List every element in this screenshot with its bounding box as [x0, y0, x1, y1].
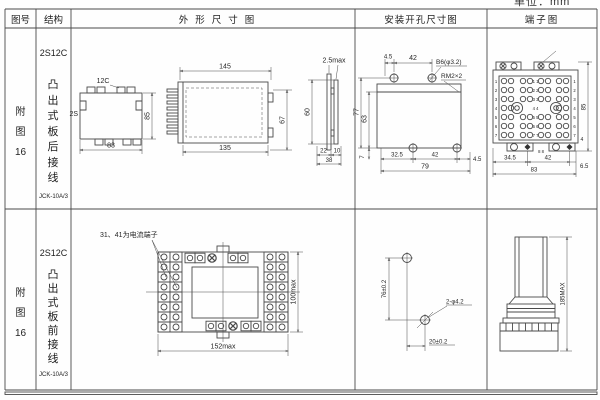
outline-panel-profile: 2.5max 60 22 10 38 [305, 58, 346, 167]
dim-mount-bottom-d1: 32.5 [391, 153, 403, 159]
dim-panel-b2: 10 [334, 149, 341, 155]
dim-mount-top-d1: 4.5 [384, 55, 393, 61]
dim-term-b2: 42 [545, 156, 552, 162]
term-row-num: 7 [495, 133, 498, 138]
dim-mount-top-d2: 42 [409, 55, 417, 62]
terminal-diagram: 1 2 3 4 5 6 7 1 2 3 4 5 6 7 1 1 2 2 3 3 … [493, 51, 592, 177]
term-row-num: 1 [573, 79, 576, 84]
term-bottom-pair: 8 8 [538, 149, 544, 154]
term-center-num: 3 3 [533, 97, 539, 102]
dim-side-top: 145 [219, 64, 231, 71]
catalog-page: 单位：mm 图号 结构 外形尺寸图 安装开孔尺寸图 端子图 附 图 16 2S1… [0, 0, 600, 400]
dim-term-total: 83 [531, 168, 538, 174]
side-profile-view: 185MAX [500, 237, 572, 351]
dim-front-width: 83 [107, 143, 115, 150]
term-row-num: 1 [495, 79, 498, 84]
term-center-num: 2 2 [533, 88, 539, 93]
dim-term-height: 85 [582, 103, 588, 110]
dim-term-foot: 4 [581, 137, 584, 143]
term-center-num: 4 4 [533, 106, 539, 111]
term-center-num: 7 7 [533, 133, 539, 138]
dim-hole-horizontal: 20±0.2 [429, 340, 448, 346]
dim-mount-left-d1: 77 [354, 108, 361, 116]
dim-mount-left-d2: 63 [362, 115, 369, 123]
dim-panel-b3: 38 [326, 158, 333, 164]
term-row-num: 2 [573, 88, 576, 93]
table-grid [5, 9, 597, 395]
term-row-num: 4 [573, 106, 576, 111]
term-row-num: 5 [573, 115, 576, 120]
dim-term-b1: 34.5 [504, 156, 516, 162]
dim-front-wiring-height: 100max [291, 279, 298, 304]
term-row-num: 7 [573, 133, 576, 138]
term-row-num: 5 [495, 115, 498, 120]
term-row-num: 3 [573, 97, 576, 102]
term-center-num: 1 1 [533, 79, 539, 84]
term-row-num: 2 [495, 88, 498, 93]
dim-profile-height: 185MAX [561, 282, 567, 305]
dim-front-height: 85 [145, 112, 152, 120]
term-row-num: 6 [573, 124, 576, 129]
outline-side-view: 145 135 67 [167, 64, 292, 157]
dim-side-bottom: 135 [219, 145, 231, 152]
label-hole-spec: B6(φ3.2) [436, 59, 462, 66]
dim-front-top-label: 12C [97, 78, 110, 85]
label-hole-spec-2: 2-φ4.2 [446, 300, 464, 306]
label-thread-spec: RM2×2 [441, 73, 463, 80]
term-row-num: 3 [495, 97, 498, 102]
dim-mount-bottom-total: 79 [421, 164, 429, 171]
dim-panel-height: 60 [305, 108, 312, 116]
dim-hole-vertical: 76±0.2 [382, 279, 388, 298]
dim-front-wiring-width: 152max [211, 344, 236, 351]
dim-panel-gap: 2.5max [323, 58, 346, 65]
front-mounting-holes: 76±0.2 20±0.2 2-φ4.2 [382, 252, 472, 351]
term-center-num: 6 6 [533, 124, 539, 129]
dim-mount-left-d3: 7 [360, 155, 366, 159]
term-row-num: 6 [495, 124, 498, 129]
dim-mount-bottom-d3: 4.5 [473, 157, 482, 163]
dim-front-left-label: 2S [69, 111, 78, 118]
term-center-num: 5 5 [533, 115, 539, 120]
outline-front-view: 12C 2S 83 85 [69, 78, 156, 154]
bottom-rule [5, 392, 597, 395]
mounting-hole-diagram: 4.5 42 B6(φ3.2) RM2×2 77 63 7 32.5 [354, 55, 483, 175]
front-wiring-view: 31、41为电流端子 152max 100max [100, 230, 303, 356]
dim-term-b3: 6.5 [580, 164, 589, 170]
dim-mount-bottom-d2: 42 [432, 153, 439, 159]
label-current-terminals-note: 31、41为电流端子 [100, 230, 158, 239]
term-row-num: 4 [495, 106, 498, 111]
dim-side-height: 67 [280, 116, 287, 124]
dim-panel-b1: 22 [320, 149, 327, 155]
drawing-layer: 12C 2S 83 85 145 135 6 [0, 0, 600, 400]
